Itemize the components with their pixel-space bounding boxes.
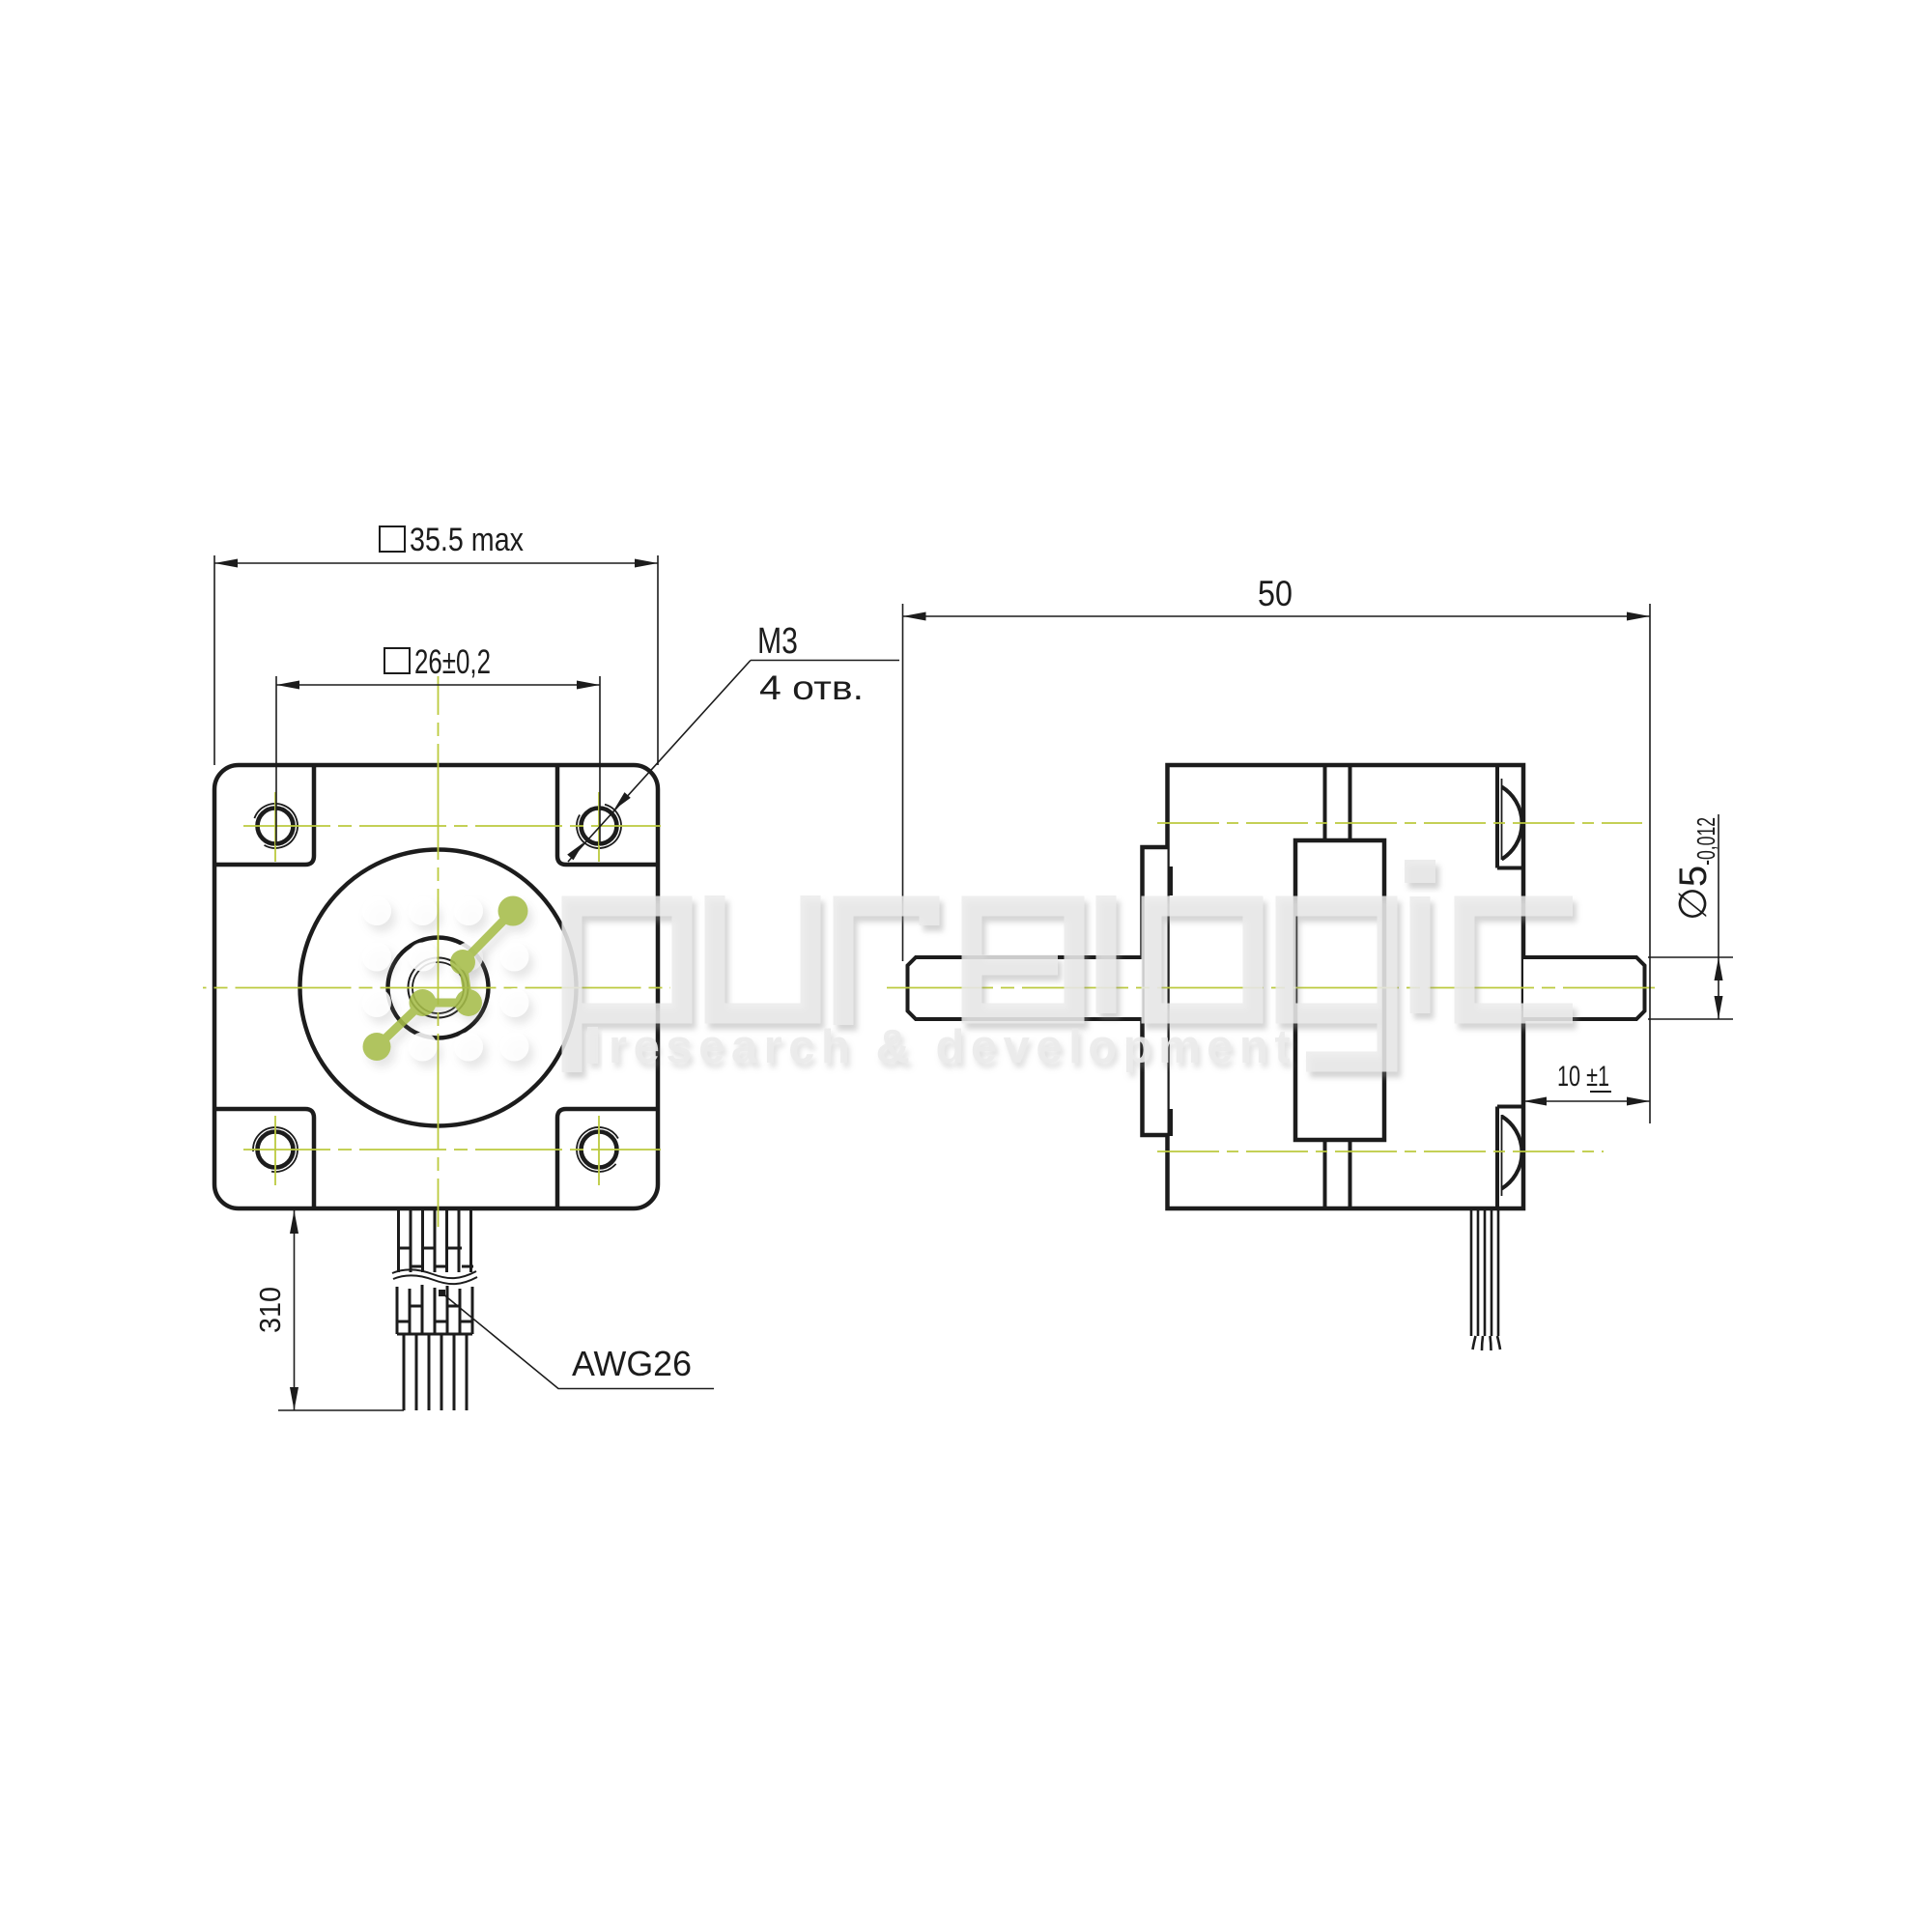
svg-text:50: 50: [1258, 574, 1293, 613]
svg-text:310: 310: [253, 1287, 287, 1333]
svg-text:26±0,2: 26±0,2: [414, 643, 491, 681]
svg-text:research & development: research & development: [609, 1021, 1296, 1073]
svg-text:M3: M3: [757, 621, 798, 662]
svg-text:10 ±1: 10 ±1: [1557, 1061, 1609, 1093]
svg-text:35.5 max: 35.5 max: [410, 522, 524, 558]
svg-text:4 отв.: 4 отв.: [759, 669, 864, 707]
svg-text:AWG26: AWG26: [572, 1344, 692, 1383]
